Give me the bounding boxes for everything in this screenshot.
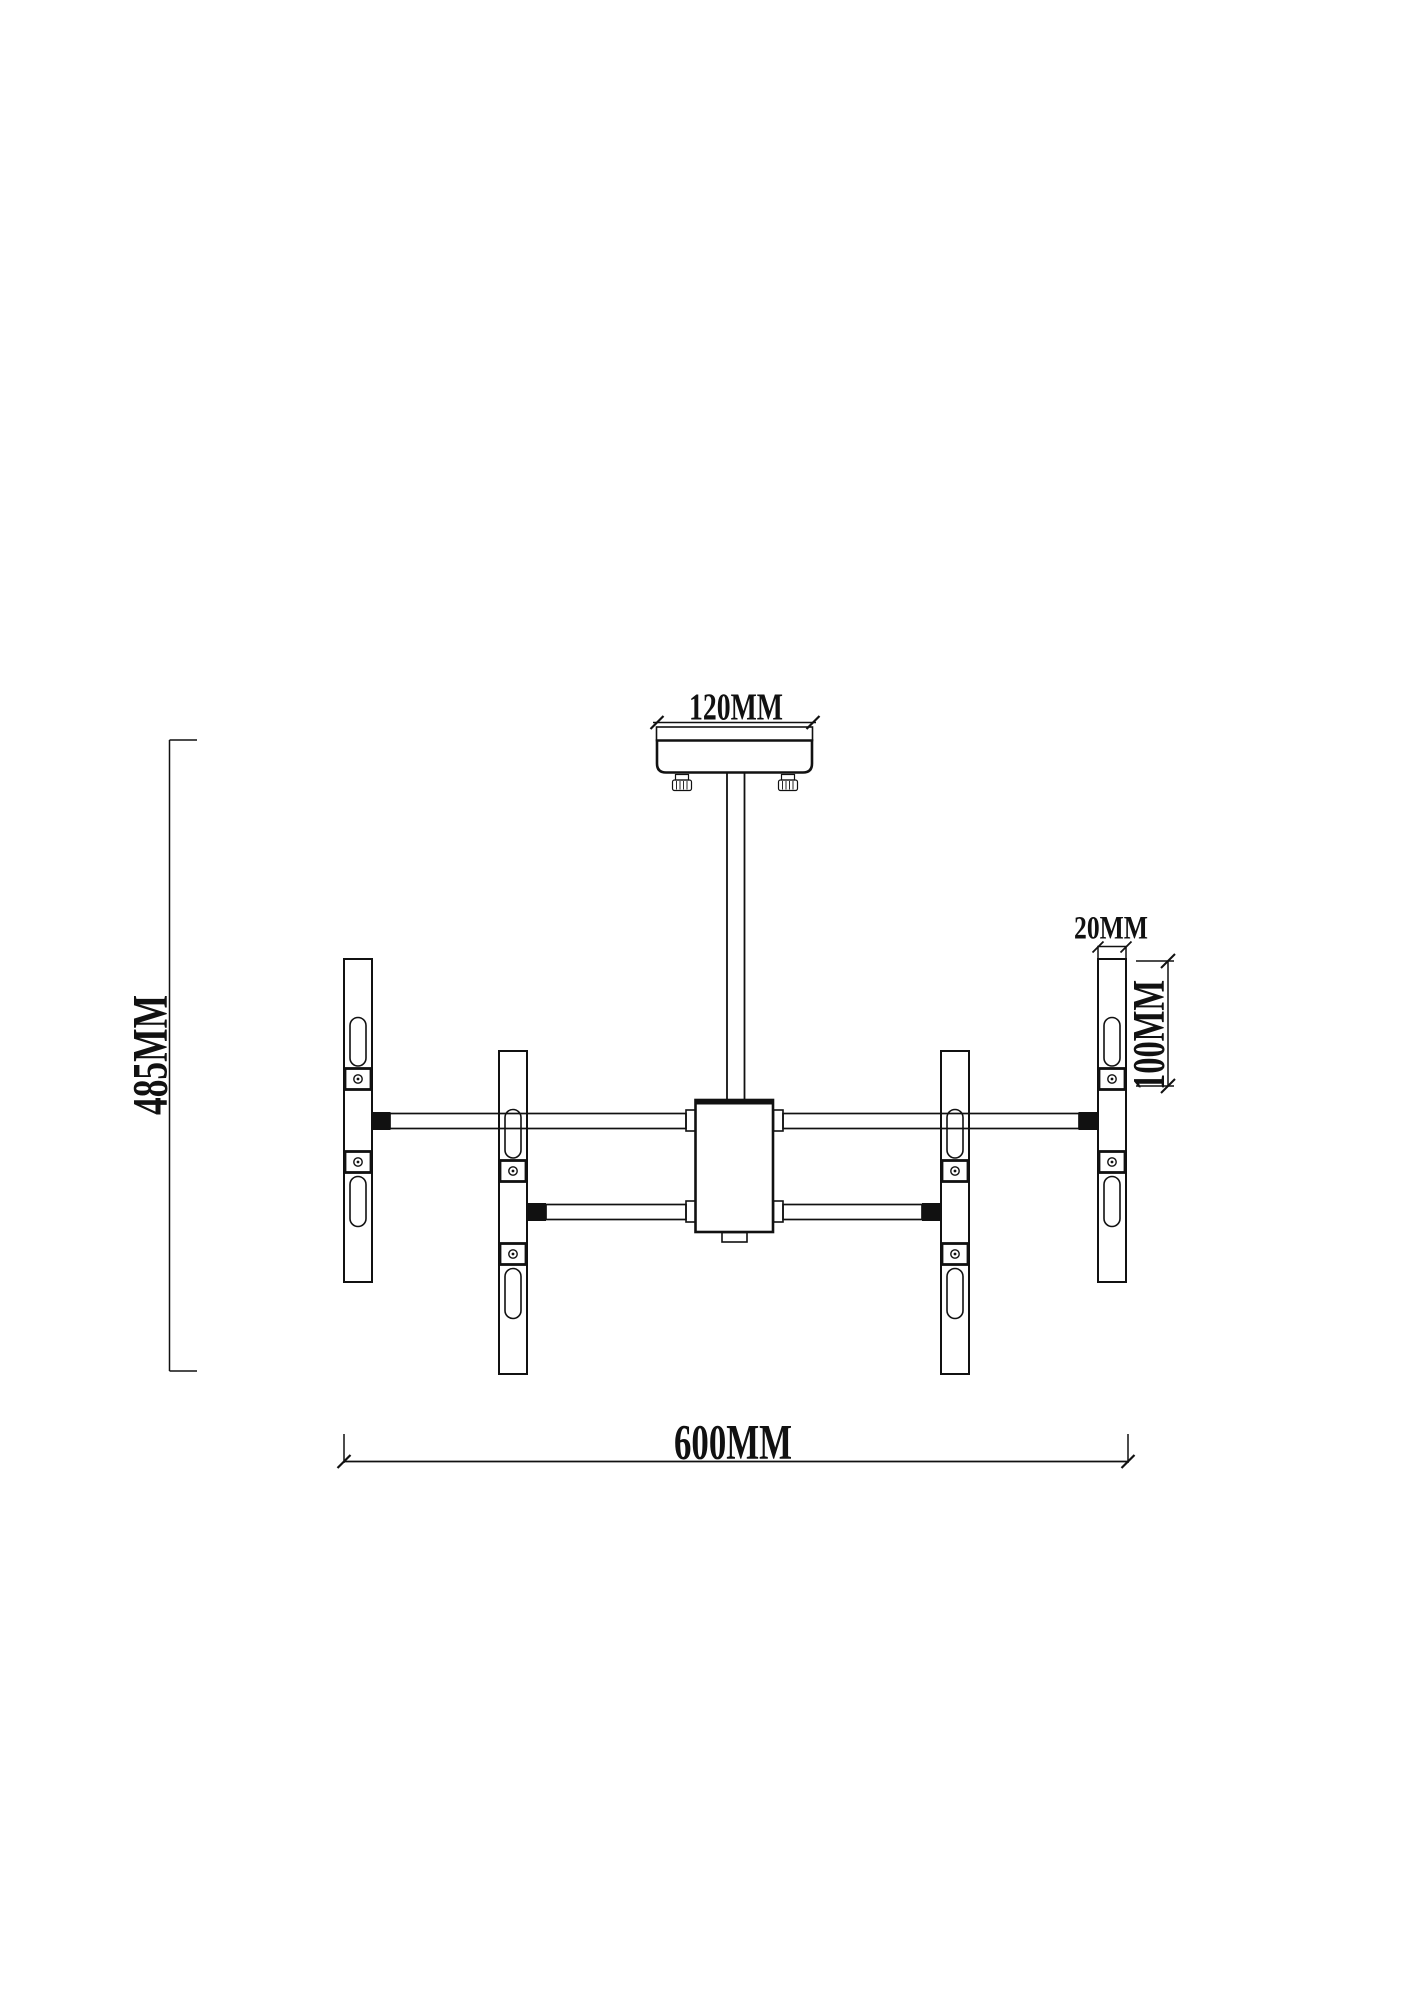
hub-bottom-tab (722, 1233, 747, 1243)
hub-body (696, 1100, 774, 1232)
arm-lower-right (774, 1201, 942, 1222)
technical-drawing-page: 120MM 485MM 20MM 100MM 600MM (0, 0, 1413, 2000)
arm-clamp-block (922, 1203, 941, 1221)
arm-clamp-block (1079, 1112, 1098, 1130)
lamp-tube-inner-left (499, 1051, 527, 1374)
arm-upper-right (774, 1110, 1098, 1131)
canopy-top-plate (657, 727, 813, 741)
outer-right-tube-cap (1098, 947, 1126, 960)
arm-lower-left (527, 1201, 696, 1222)
arm-clamp-block (372, 1112, 391, 1130)
lamp-tube-outer-right (1098, 959, 1126, 1282)
lamp-tube-inner-right (941, 1051, 969, 1374)
dimension-canopy-width: 120MM (651, 687, 820, 730)
dim-label-overall-width: 600MM (674, 1414, 792, 1470)
dimension-overall-width: 600MM (338, 1414, 1135, 1470)
arm-clamp-block (527, 1203, 546, 1221)
canopy-body (657, 741, 812, 773)
thumb-screw-right (779, 775, 798, 791)
dimension-lamp-section: 100MM (1124, 954, 1175, 1093)
lamp-tube-outer-left (344, 959, 372, 1282)
dim-label-overall-height: 485MM (122, 995, 178, 1115)
dim-label-canopy-width: 120MM (689, 687, 783, 729)
dim-label-lamp-section: 100MM (1124, 980, 1174, 1090)
dimension-tube-width: 20MM (1074, 911, 1148, 953)
ceiling-canopy (657, 727, 813, 791)
dimension-overall-height: 485MM (122, 740, 198, 1371)
arm-upper-left (372, 1110, 696, 1131)
dim-label-tube-width: 20MM (1074, 911, 1148, 947)
down-rod (727, 773, 745, 1100)
thumb-screw-left (673, 775, 692, 791)
hub-top-band (695, 1099, 774, 1105)
chandelier-dimension-drawing: 120MM 485MM 20MM 100MM 600MM (0, 0, 1413, 2000)
central-hub (695, 1099, 774, 1242)
